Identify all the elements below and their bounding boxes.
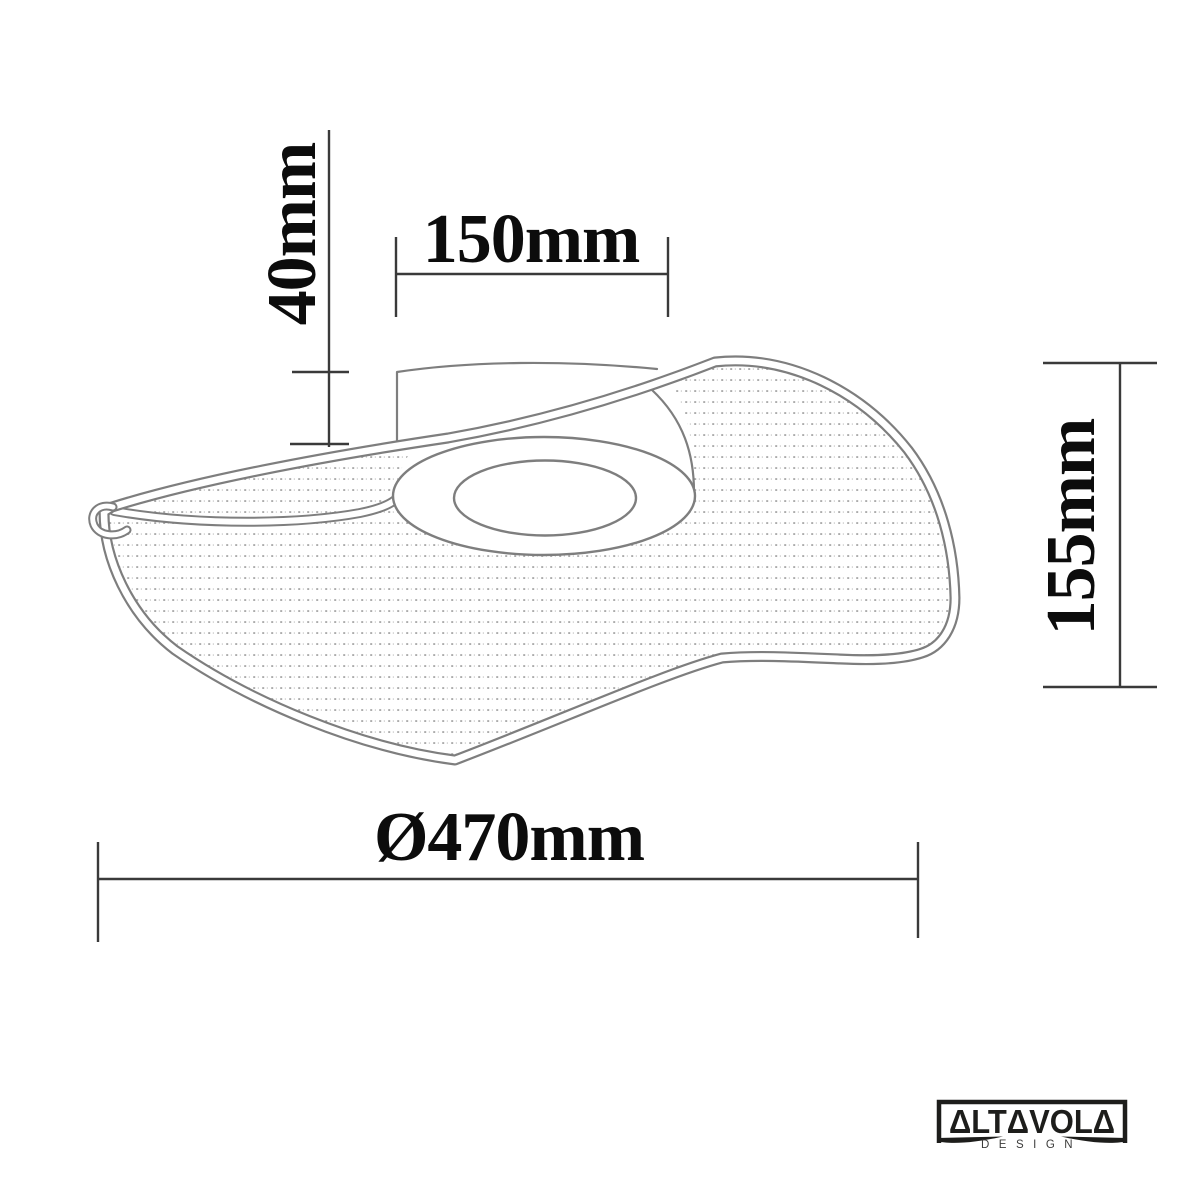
dim-diameter-label: Ø470mm (374, 798, 644, 878)
lamp-drawing (93, 361, 955, 760)
altavola-logo: ΔLTΔVOLΔ DESIGN (925, 1090, 1140, 1156)
dim-fixture-height-label: 155mm (1032, 419, 1112, 636)
opening-ring-inner (454, 461, 636, 536)
lamp-technical-drawing (0, 0, 1200, 1200)
logo-design-subtitle: DESIGN (981, 1139, 1082, 1151)
altavola-wordmark: ΔLTΔVOLΔ (949, 1103, 1115, 1140)
dim-canopy-height-label: 40mm (253, 143, 333, 326)
dim-canopy-width-label: 150mm (423, 200, 640, 280)
